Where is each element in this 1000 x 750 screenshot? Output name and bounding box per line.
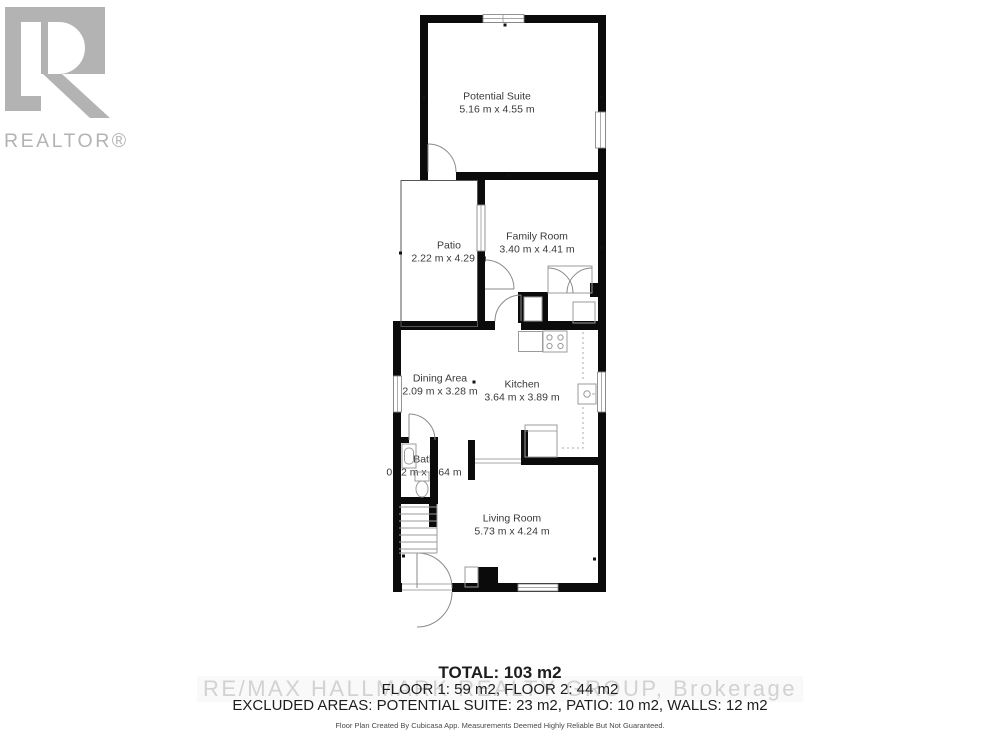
opening-lines [402,459,521,590]
window-living-bottom [518,584,558,591]
stove-icon [543,331,567,352]
measurement-dots [399,24,603,561]
counter-left [519,332,543,352]
window-patio-family [477,205,485,251]
disclaimer-text: Floor Plan Created By Cubicasa App. Meas… [0,721,1000,730]
wall-layer [393,15,606,592]
door-kitchen [495,295,521,321]
window-kitchen-right [598,372,606,412]
realtor-logo-icon [4,6,114,124]
window-suite-top [483,15,524,23]
counter-dashed-bottom [559,407,583,448]
window-suite-right [596,112,606,148]
door-suite [428,144,456,172]
total-area-text: TOTAL: 103 m2 [0,663,1000,683]
realtor-logo: REALTOR® [4,6,134,153]
window-dining-left [394,376,402,412]
closet-interior [524,297,542,321]
door-icons [409,144,592,627]
toilet-icon [415,472,429,497]
fridge-icon [573,302,595,323]
fixture-icons [399,297,596,587]
patio-outline [401,181,478,327]
bath-vanity-icon [402,444,416,468]
floor-areas-text: FLOOR 1: 59 m2, FLOOR 2: 44 m2 [0,681,1000,698]
excluded-areas-text: EXCLUDED AREAS: POTENTIAL SUITE: 23 m2, … [0,697,1000,714]
floorplan-page: REALTOR® Potential Suite 5.16 m x 4.55 m… [0,0,1000,750]
realtor-wordmark: REALTOR® [4,130,134,153]
door-bath [409,414,435,440]
door-family [485,260,514,289]
sink-icon [578,384,596,404]
counter-island [525,425,557,457]
fireplace-icon [478,567,498,588]
closet-double-doors [548,266,592,293]
floor-plan-drawing [390,8,610,636]
